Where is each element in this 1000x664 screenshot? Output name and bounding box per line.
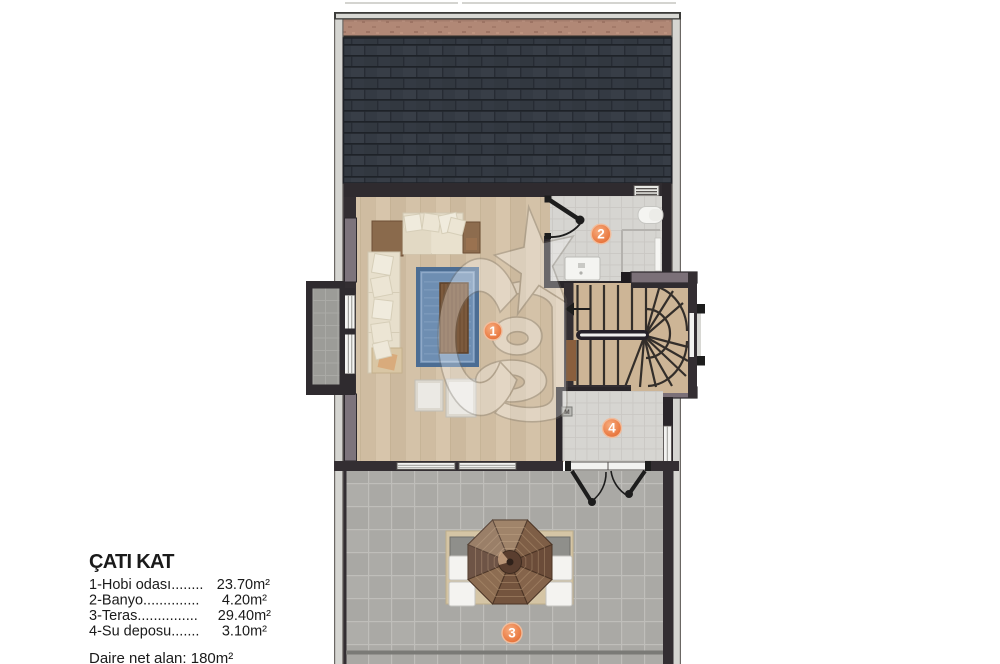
svg-text:Daire net alan: 180m²: Daire net alan: 180m² bbox=[89, 650, 233, 664]
svg-text:3: 3 bbox=[508, 626, 516, 641]
svg-text:4.20m²: 4.20m² bbox=[222, 593, 267, 609]
svg-text:29.40m²: 29.40m² bbox=[218, 608, 271, 624]
svg-text:3.10m²: 3.10m² bbox=[222, 624, 267, 640]
svg-text:2-Banyo..............: 2-Banyo.............. bbox=[89, 593, 199, 609]
svg-text:1: 1 bbox=[489, 324, 496, 339]
svg-text:23.70m²: 23.70m² bbox=[217, 577, 270, 593]
svg-text:3-Teras...............: 3-Teras............... bbox=[89, 608, 198, 624]
svg-text:1-Hobi odası........: 1-Hobi odası........ bbox=[89, 577, 203, 593]
svg-text:4: 4 bbox=[608, 421, 616, 436]
svg-text:ÇATI KAT: ÇATI KAT bbox=[89, 551, 174, 573]
svg-text:4-Su deposu.......: 4-Su deposu....... bbox=[89, 624, 199, 640]
svg-text:2: 2 bbox=[597, 227, 605, 242]
